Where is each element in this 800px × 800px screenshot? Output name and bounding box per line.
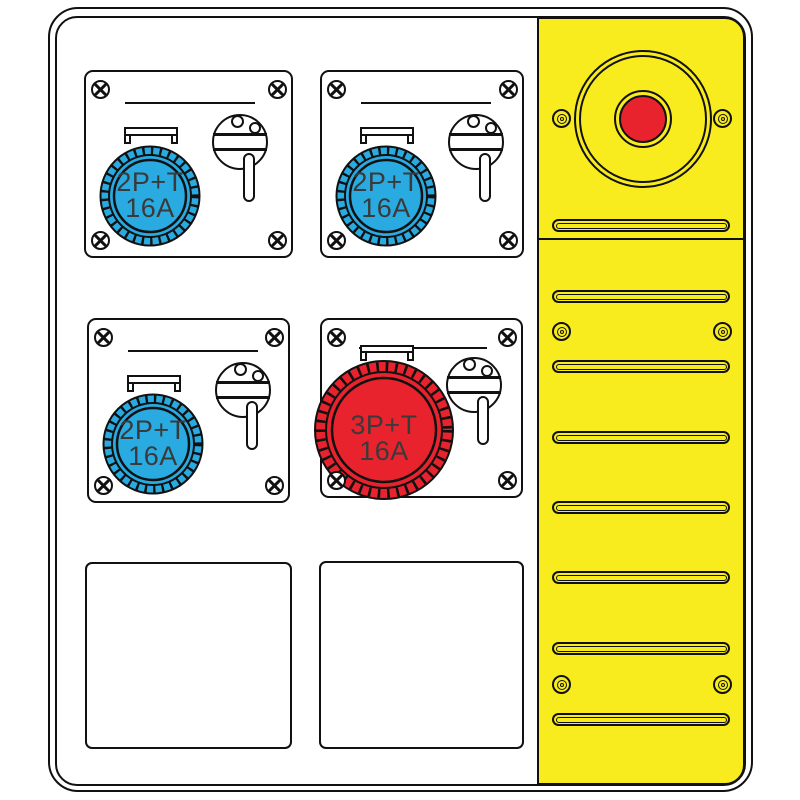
interlock-switch-handle[interactable] xyxy=(243,153,255,202)
socket-rating-label: 3P+T 16A xyxy=(309,412,459,464)
phillips-screw-icon xyxy=(327,328,346,347)
socket-rating-line1: 2P+T xyxy=(95,169,205,195)
vent-slot xyxy=(552,713,730,726)
phillips-screw-icon xyxy=(499,80,518,99)
yellow-side-panel xyxy=(537,17,745,785)
emergency-stop-assembly xyxy=(574,50,712,188)
washer-screw-icon xyxy=(552,675,571,694)
socket-module-top-right: 2P+T 16A xyxy=(320,70,524,258)
socket-rating-line2: 16A xyxy=(95,195,205,221)
socket-module-top-left: 2P+T 16A xyxy=(84,70,293,258)
phillips-screw-icon xyxy=(268,80,287,99)
phillips-screw-icon xyxy=(327,471,346,490)
washer-screw-icon xyxy=(552,322,571,341)
interlock-switch-band xyxy=(449,133,503,136)
vent-slot xyxy=(552,219,730,232)
vent-slot xyxy=(552,431,730,444)
socket-rating-label: 2P+T 16A xyxy=(95,169,205,221)
emergency-stop-button[interactable] xyxy=(619,95,667,143)
module-trim-line xyxy=(361,102,491,104)
socket-rating-line2: 16A xyxy=(331,195,441,221)
interlock-pin xyxy=(234,363,247,376)
phillips-screw-icon xyxy=(265,328,284,347)
interlock-switch-band xyxy=(213,133,267,136)
washer-screw-icon xyxy=(713,109,732,128)
socket-rating-line1: 2P+T xyxy=(331,169,441,195)
phillips-screw-icon xyxy=(327,80,346,99)
module-trim-line xyxy=(128,350,258,352)
interlock-switch-handle[interactable] xyxy=(246,401,258,450)
interlock-pin xyxy=(249,122,261,134)
phillips-screw-icon xyxy=(91,80,110,99)
socket-rating-label: 2P+T 16A xyxy=(331,169,441,221)
module-trim-line xyxy=(125,102,255,104)
socket-rating-line2: 16A xyxy=(98,443,208,469)
interlock-pin xyxy=(231,115,244,128)
vent-slot xyxy=(552,501,730,514)
socket-clip-bar xyxy=(360,345,414,353)
interlock-pin xyxy=(252,370,264,382)
vent-slot xyxy=(552,360,730,373)
socket-clip-bar xyxy=(360,127,414,136)
phillips-screw-icon xyxy=(499,231,518,250)
phillips-screw-icon xyxy=(327,231,346,250)
interlock-switch-band xyxy=(449,148,503,151)
vent-slot xyxy=(552,571,730,584)
phillips-screw-icon xyxy=(498,328,517,347)
phillips-screw-icon xyxy=(94,328,113,347)
socket-module-bottom-left: 2P+T 16A xyxy=(87,318,290,503)
interlock-pin xyxy=(485,122,497,134)
socket-rating-line1: 2P+T xyxy=(98,417,208,443)
distribution-board-illustration: 2P+T 16A 2P+T 16A xyxy=(0,0,800,800)
interlock-pin xyxy=(463,358,476,371)
interlock-pin xyxy=(481,365,493,377)
washer-screw-icon xyxy=(713,322,732,341)
socket-rating-label: 2P+T 16A xyxy=(98,417,208,469)
blank-plate-right xyxy=(319,561,524,749)
vent-slot xyxy=(552,642,730,655)
phillips-screw-icon xyxy=(498,471,517,490)
blank-plate-left xyxy=(85,562,292,749)
washer-screw-icon xyxy=(552,109,571,128)
phillips-screw-icon xyxy=(268,231,287,250)
interlock-switch-handle[interactable] xyxy=(477,396,489,445)
interlock-switch-band xyxy=(216,396,270,399)
socket-clip-bar xyxy=(127,375,181,384)
socket-clip-bar xyxy=(124,127,178,136)
phillips-screw-icon xyxy=(91,231,110,250)
interlock-switch-handle[interactable] xyxy=(479,153,491,202)
socket-rating-line1: 3P+T xyxy=(309,412,459,438)
socket-rating-line2: 16A xyxy=(309,438,459,464)
phillips-screw-icon xyxy=(265,476,284,495)
vent-slot xyxy=(552,290,730,303)
socket-module-bottom-middle: 3P+T 16A xyxy=(320,318,523,498)
phillips-screw-icon xyxy=(94,476,113,495)
panel-divider-line xyxy=(537,238,745,240)
interlock-switch-band xyxy=(216,381,270,384)
interlock-pin xyxy=(467,115,480,128)
washer-screw-icon xyxy=(713,675,732,694)
interlock-switch-band xyxy=(213,148,267,151)
